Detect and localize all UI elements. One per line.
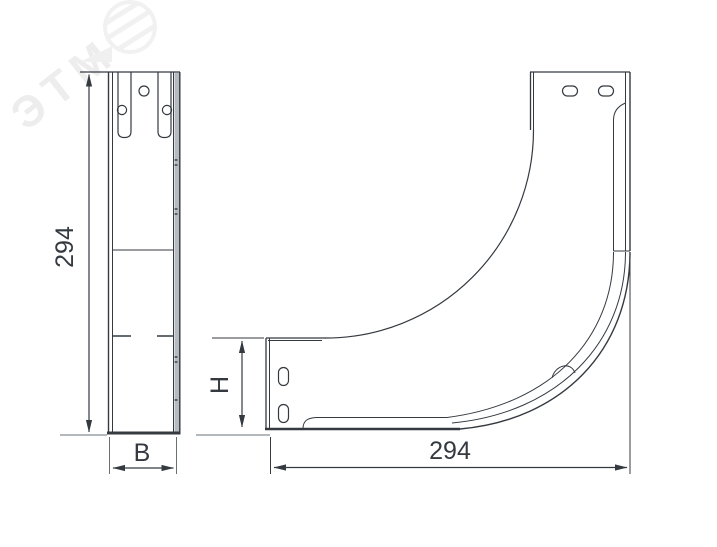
dimension-front-height: 294	[51, 75, 107, 436]
front-right-tab	[158, 72, 171, 138]
front-right-flange-band	[175, 73, 180, 433]
side-arm-inner-line	[303, 418, 447, 430]
front-view	[80, 72, 181, 433]
side-inner-bend-curve	[326, 130, 534, 338]
front-left-tab-hole	[117, 105, 126, 114]
side-arm-slot-1	[279, 368, 289, 386]
front-center-hole	[139, 86, 149, 96]
dimension-front-width: B	[110, 437, 177, 474]
watermark-logo: ЭТМ	[2, 0, 180, 140]
dimension-side-length: 294	[271, 253, 631, 474]
technical-drawing-page: ЭТМ	[0, 0, 717, 547]
side-view	[265, 72, 630, 429]
front-left-tab	[118, 72, 131, 138]
dim-side-length-label: 294	[429, 437, 471, 465]
side-inner-wall-line	[614, 103, 626, 251]
side-outer-bend-curve	[460, 252, 630, 429]
dim-front-height-label: 294	[51, 226, 79, 268]
side-arm-slot-2	[279, 405, 289, 423]
watermark-text: ЭТМ	[2, 28, 126, 140]
side-outer-bend-curve-3	[447, 252, 614, 418]
front-right-tab-hole	[162, 105, 171, 114]
dimension-side-arm-height: H	[196, 338, 270, 435]
side-top-slot-2	[599, 86, 614, 96]
dim-side-height-label: H	[206, 376, 234, 394]
side-top-slot-1	[563, 86, 578, 96]
cable-tray-riser-drawing: ЭТМ	[0, 0, 717, 547]
side-outer-bend-curve-2	[452, 252, 626, 423]
dim-front-width-label: B	[134, 439, 151, 467]
